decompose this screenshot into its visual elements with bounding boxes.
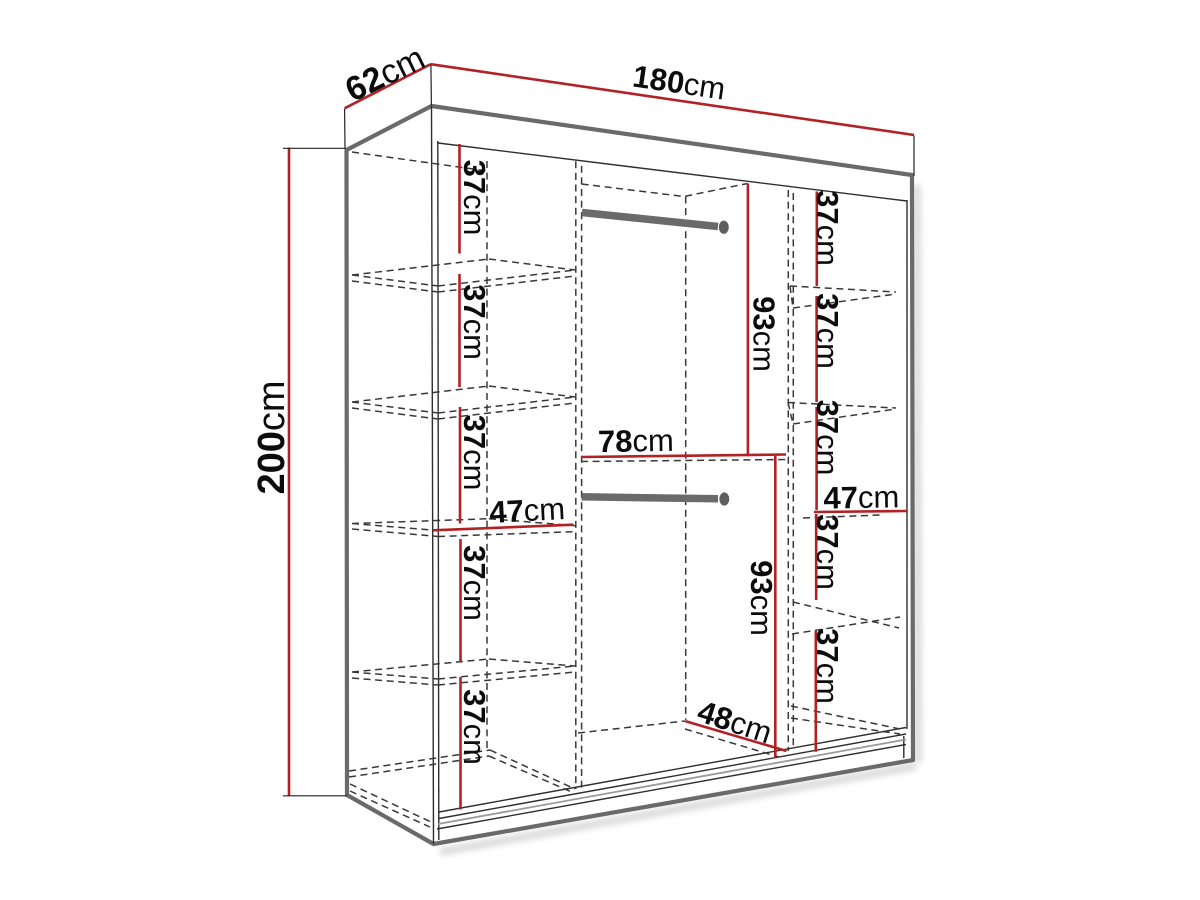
svg-text:37cm: 37cm bbox=[810, 293, 845, 369]
svg-text:37cm: 37cm bbox=[810, 628, 845, 704]
svg-text:200cm: 200cm bbox=[251, 380, 293, 494]
svg-text:37cm: 37cm bbox=[810, 190, 845, 266]
svg-text:37cm: 37cm bbox=[810, 400, 845, 476]
svg-text:37cm: 37cm bbox=[457, 284, 492, 360]
svg-text:93cm: 93cm bbox=[747, 296, 782, 372]
svg-text:37cm: 37cm bbox=[457, 415, 492, 491]
svg-text:37cm: 37cm bbox=[457, 545, 492, 621]
svg-text:37cm: 37cm bbox=[457, 689, 492, 765]
svg-text:37cm: 37cm bbox=[810, 514, 845, 590]
svg-text:78cm: 78cm bbox=[598, 423, 674, 459]
svg-text:47cm: 47cm bbox=[488, 491, 566, 530]
svg-text:93cm: 93cm bbox=[744, 560, 779, 636]
svg-text:37cm: 37cm bbox=[457, 160, 492, 236]
svg-text:47cm: 47cm bbox=[823, 479, 899, 515]
